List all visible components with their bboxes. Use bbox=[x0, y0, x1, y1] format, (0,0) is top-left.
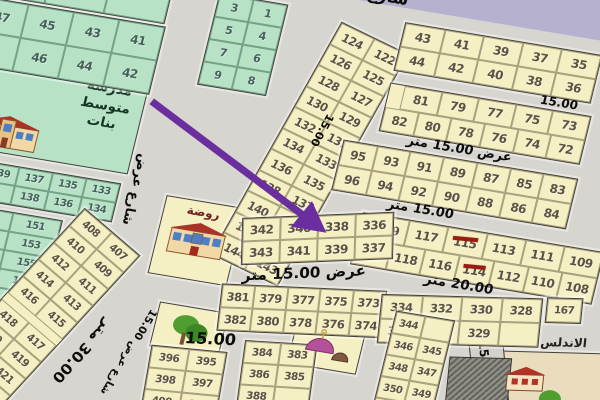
map-canvas: شارع عرض 15.00 متر مدرسة متوسط بنات bbox=[0, 0, 600, 400]
plot-44: 44 bbox=[58, 45, 112, 86]
plot-72: 72 bbox=[546, 135, 585, 164]
plot-350: 350 bbox=[376, 376, 410, 400]
plot-388: 388 bbox=[237, 384, 275, 400]
block-a: 396395398397400399402 bbox=[136, 345, 227, 400]
plot-38: 38 bbox=[512, 66, 557, 96]
map-viewport: شارع عرض 15.00 متر مدرسة متوسط بنات bbox=[0, 0, 600, 400]
plot-379: 379 bbox=[253, 286, 288, 310]
street-label-top: شارع bbox=[365, 0, 410, 8]
block-g2: 31547698 bbox=[197, 0, 289, 96]
street-label-mid_2: 15.00 bbox=[184, 330, 237, 348]
district-label: الاندلس bbox=[540, 336, 588, 349]
block-y7: 381379377375373382380378376374 bbox=[216, 283, 387, 338]
plot-40: 40 bbox=[473, 60, 518, 90]
plot-382: 382 bbox=[217, 307, 252, 331]
school-building-icon bbox=[0, 109, 43, 155]
plot-375: 375 bbox=[318, 289, 353, 313]
plot-329: 329 bbox=[458, 321, 500, 346]
plot-330: 330 bbox=[460, 297, 502, 322]
plot-cell-empty bbox=[272, 387, 310, 400]
plot-167: 167 bbox=[546, 298, 583, 323]
plot-386: 386 bbox=[240, 363, 278, 387]
plot-328: 328 bbox=[500, 298, 542, 323]
plot-377: 377 bbox=[286, 287, 321, 311]
plot-cell-empty bbox=[497, 322, 539, 347]
plot-381: 381 bbox=[220, 284, 255, 308]
mosque-icon bbox=[298, 325, 356, 370]
plot-46: 46 bbox=[12, 38, 66, 79]
plot-8: 8 bbox=[232, 67, 271, 95]
plot-384: 384 bbox=[243, 341, 281, 365]
hatched-block-1 bbox=[445, 357, 512, 400]
plot-42: 42 bbox=[434, 53, 479, 83]
plot-9: 9 bbox=[198, 61, 237, 89]
plot-385: 385 bbox=[275, 365, 313, 389]
street-label-mid_1: عرض 15.00 متر bbox=[242, 264, 367, 284]
plot-44: 44 bbox=[395, 47, 440, 77]
plot-380: 380 bbox=[250, 309, 285, 333]
plot-84: 84 bbox=[532, 198, 571, 228]
block-p167: 167 bbox=[545, 297, 584, 324]
